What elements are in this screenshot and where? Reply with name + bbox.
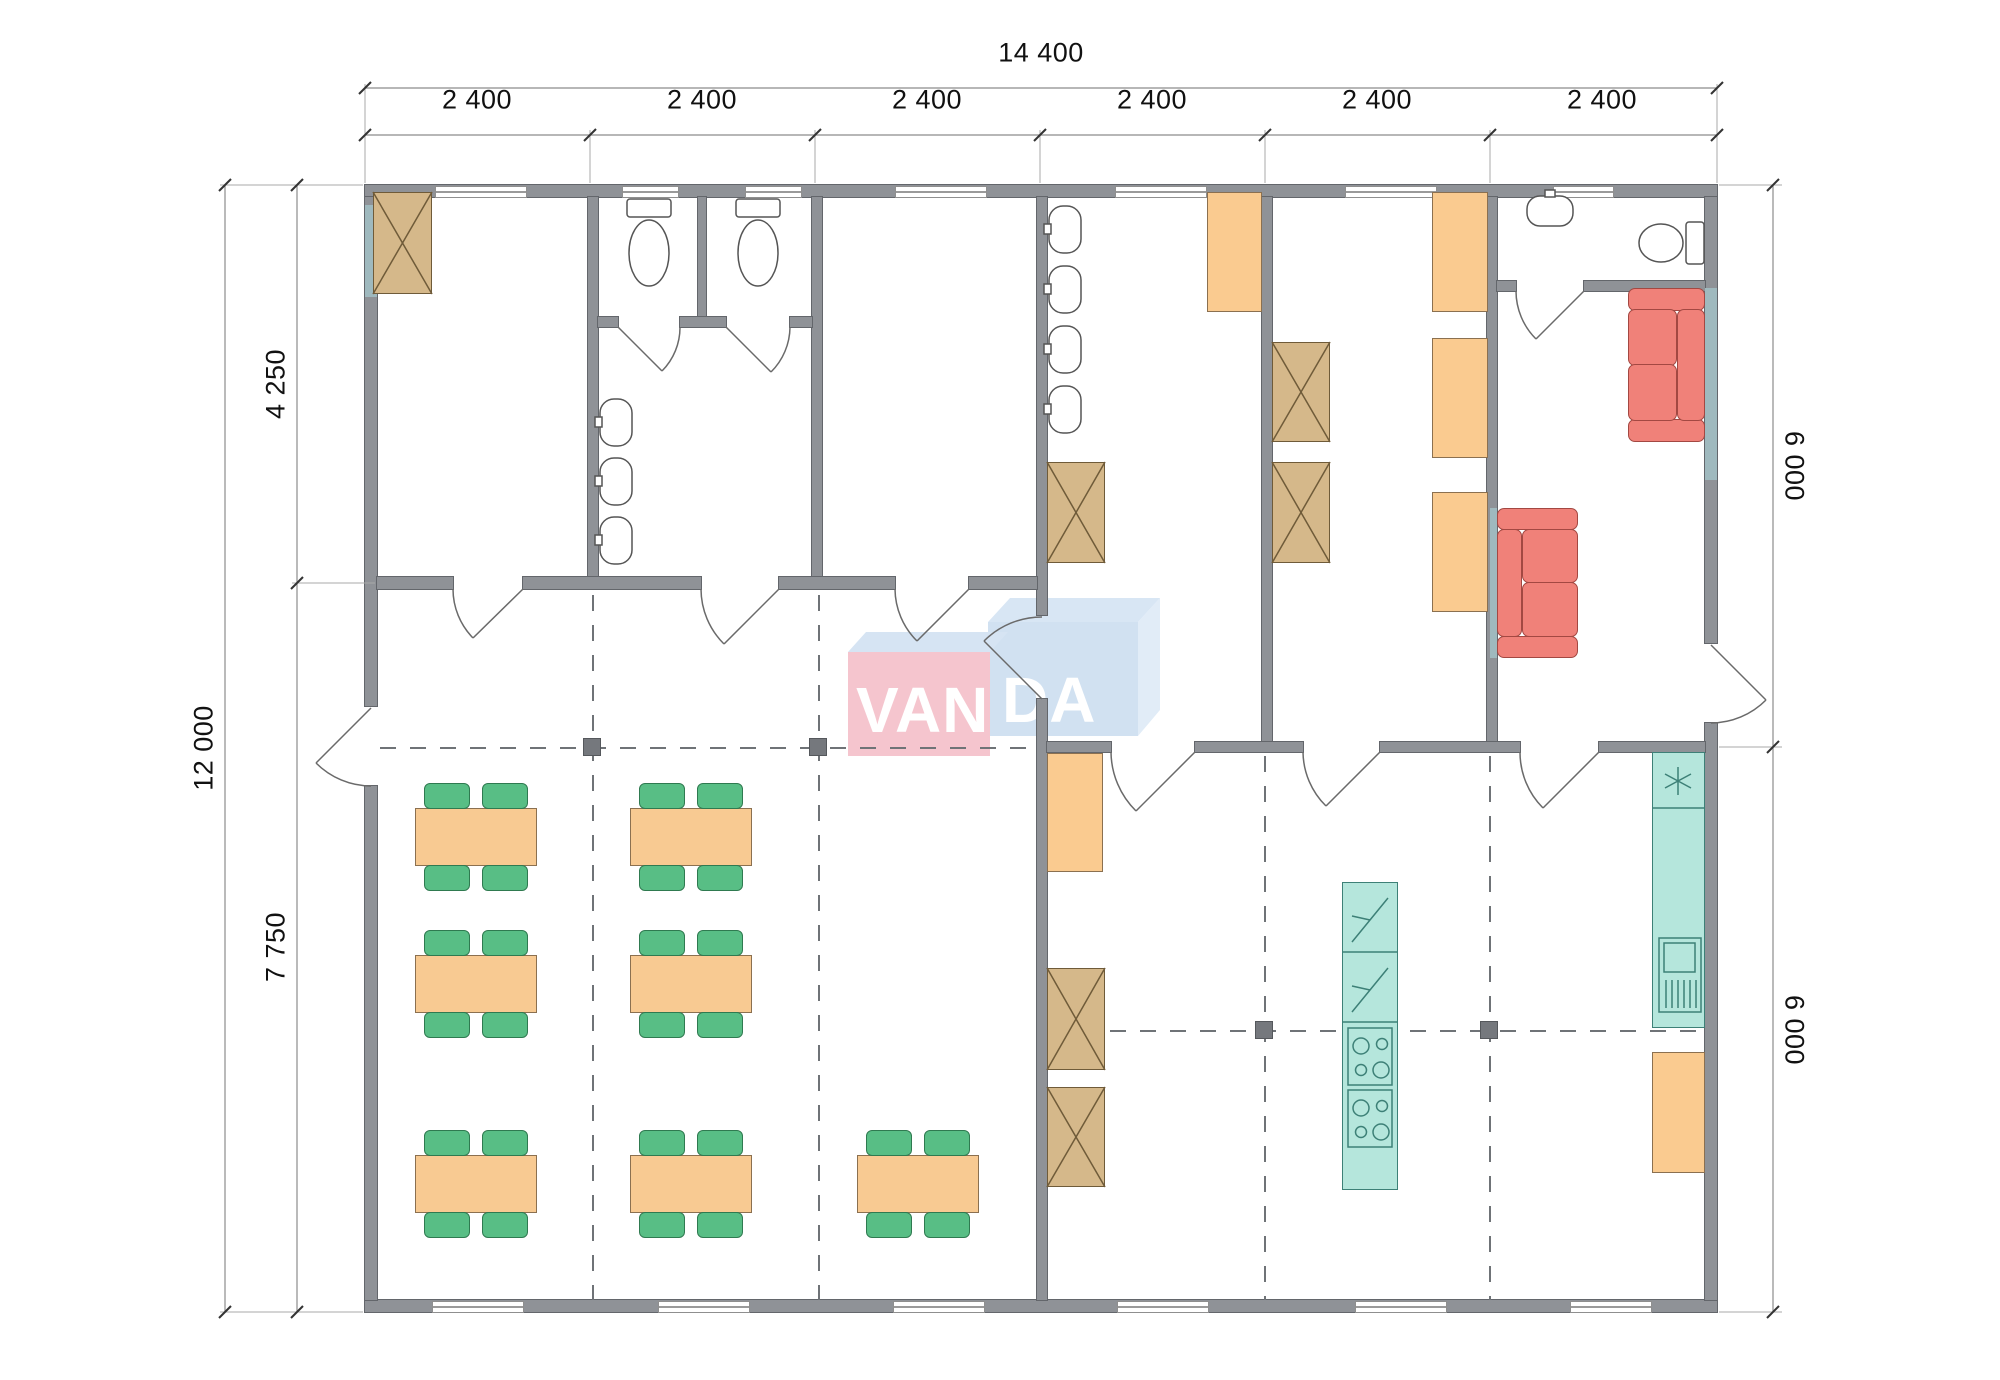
dining-table bbox=[857, 1155, 979, 1213]
window bbox=[1570, 1301, 1652, 1313]
chair bbox=[697, 1012, 743, 1038]
wall bbox=[969, 577, 1037, 589]
storage-cabinet bbox=[1432, 338, 1488, 458]
chair bbox=[924, 1212, 970, 1238]
wall bbox=[1195, 742, 1303, 752]
storage-cabinet bbox=[1207, 192, 1262, 312]
wall bbox=[1037, 197, 1047, 615]
grid-node bbox=[1256, 1022, 1272, 1038]
chair bbox=[697, 783, 743, 809]
wall bbox=[1497, 281, 1516, 291]
window bbox=[895, 186, 987, 198]
chair bbox=[482, 1012, 528, 1038]
wall bbox=[680, 317, 726, 327]
dim-top-total: 14 400 bbox=[998, 38, 1084, 69]
dining-table bbox=[630, 955, 752, 1013]
glass-strip bbox=[1490, 508, 1497, 658]
chair bbox=[424, 1012, 470, 1038]
chair bbox=[424, 1130, 470, 1156]
wall bbox=[1262, 197, 1272, 742]
wardrobe bbox=[373, 192, 432, 294]
chair bbox=[697, 1130, 743, 1156]
floor-plan-canvas: VAN DA bbox=[0, 0, 2000, 1380]
wall bbox=[779, 577, 895, 589]
wardrobe bbox=[1272, 342, 1330, 442]
sofa-seat bbox=[1628, 309, 1677, 366]
dim-top-seg-3: 2 400 bbox=[892, 85, 962, 116]
wall bbox=[598, 317, 618, 327]
dim-right-seg-2: 6 000 bbox=[1779, 995, 1810, 1065]
window bbox=[893, 1301, 985, 1313]
grid-line-dashed bbox=[818, 595, 820, 1300]
wardrobe bbox=[1272, 462, 1330, 563]
plan-geometry bbox=[0, 0, 2000, 1380]
sofa-armrest bbox=[1628, 288, 1705, 311]
wall bbox=[377, 577, 453, 589]
sofa-seat bbox=[1628, 364, 1677, 421]
window bbox=[1553, 186, 1614, 198]
wall bbox=[1380, 742, 1520, 752]
grid-node bbox=[584, 739, 600, 755]
sofa-seat bbox=[1522, 529, 1578, 583]
chair bbox=[639, 783, 685, 809]
chair bbox=[482, 865, 528, 891]
grid-node bbox=[1481, 1022, 1497, 1038]
dining-table bbox=[630, 808, 752, 866]
sofa-armrest bbox=[1497, 636, 1578, 658]
storage-cabinet bbox=[1047, 753, 1103, 872]
sofa-backrest bbox=[1677, 309, 1705, 421]
wall bbox=[1599, 742, 1705, 752]
sofa-armrest bbox=[1497, 508, 1578, 530]
chair bbox=[639, 865, 685, 891]
chair bbox=[482, 930, 528, 956]
chair bbox=[866, 1130, 912, 1156]
dim-top-seg-2: 2 400 bbox=[667, 85, 737, 116]
sofa-backrest bbox=[1497, 529, 1522, 637]
chair bbox=[639, 1212, 685, 1238]
storage-cabinet bbox=[1432, 492, 1488, 612]
dining-table bbox=[415, 808, 537, 866]
wall bbox=[790, 317, 812, 327]
wall bbox=[365, 1300, 1717, 1312]
wall bbox=[1705, 723, 1717, 1300]
grid-line-dashed bbox=[592, 595, 594, 1300]
chair bbox=[866, 1212, 912, 1238]
wall bbox=[588, 197, 598, 583]
dining-table bbox=[415, 1155, 537, 1213]
chair bbox=[424, 1212, 470, 1238]
window bbox=[658, 1301, 750, 1313]
window bbox=[1345, 186, 1437, 198]
wall bbox=[812, 197, 822, 583]
window bbox=[1117, 1301, 1209, 1313]
chair bbox=[482, 1212, 528, 1238]
chair bbox=[639, 1130, 685, 1156]
sofa-armrest bbox=[1628, 419, 1705, 442]
dim-left-seg-1: 4 250 bbox=[261, 349, 292, 419]
wall bbox=[523, 577, 701, 589]
wall bbox=[1047, 742, 1111, 752]
chair bbox=[424, 930, 470, 956]
dim-left-seg-2: 7 750 bbox=[261, 912, 292, 982]
dim-top-seg-1: 2 400 bbox=[442, 85, 512, 116]
chair bbox=[482, 1130, 528, 1156]
dining-table bbox=[630, 1155, 752, 1213]
chair bbox=[639, 930, 685, 956]
kitchen-counter bbox=[1652, 752, 1705, 1028]
dim-right-seg-1: 6 000 bbox=[1779, 431, 1810, 501]
wall bbox=[1487, 197, 1497, 742]
chair bbox=[697, 930, 743, 956]
grid-line-dashed bbox=[380, 747, 1034, 749]
wall bbox=[1037, 699, 1047, 1300]
wardrobe bbox=[1047, 462, 1105, 563]
sofa-seat bbox=[1522, 582, 1578, 637]
dim-left-total: 12 000 bbox=[189, 705, 220, 791]
wall bbox=[698, 197, 706, 321]
window bbox=[435, 186, 527, 198]
chair bbox=[639, 1012, 685, 1038]
chair bbox=[697, 1212, 743, 1238]
grid-node bbox=[810, 739, 826, 755]
dim-top-seg-6: 2 400 bbox=[1567, 85, 1637, 116]
window bbox=[1355, 1301, 1447, 1313]
window bbox=[622, 186, 679, 198]
kitchen-island bbox=[1342, 882, 1398, 1190]
wardrobe bbox=[1047, 968, 1105, 1070]
chair bbox=[424, 783, 470, 809]
storage-cabinet bbox=[1652, 1052, 1705, 1173]
storage-cabinet bbox=[1432, 192, 1488, 312]
window bbox=[745, 186, 802, 198]
chair bbox=[697, 865, 743, 891]
wardrobe bbox=[1047, 1087, 1105, 1187]
chair bbox=[482, 783, 528, 809]
chair bbox=[924, 1130, 970, 1156]
wall bbox=[365, 185, 1717, 197]
wall bbox=[365, 786, 377, 1300]
glass-strip bbox=[1705, 288, 1717, 480]
window bbox=[1115, 186, 1207, 198]
chair bbox=[424, 865, 470, 891]
dining-table bbox=[415, 955, 537, 1013]
dim-top-seg-4: 2 400 bbox=[1117, 85, 1187, 116]
window bbox=[432, 1301, 524, 1313]
dim-top-seg-5: 2 400 bbox=[1342, 85, 1412, 116]
